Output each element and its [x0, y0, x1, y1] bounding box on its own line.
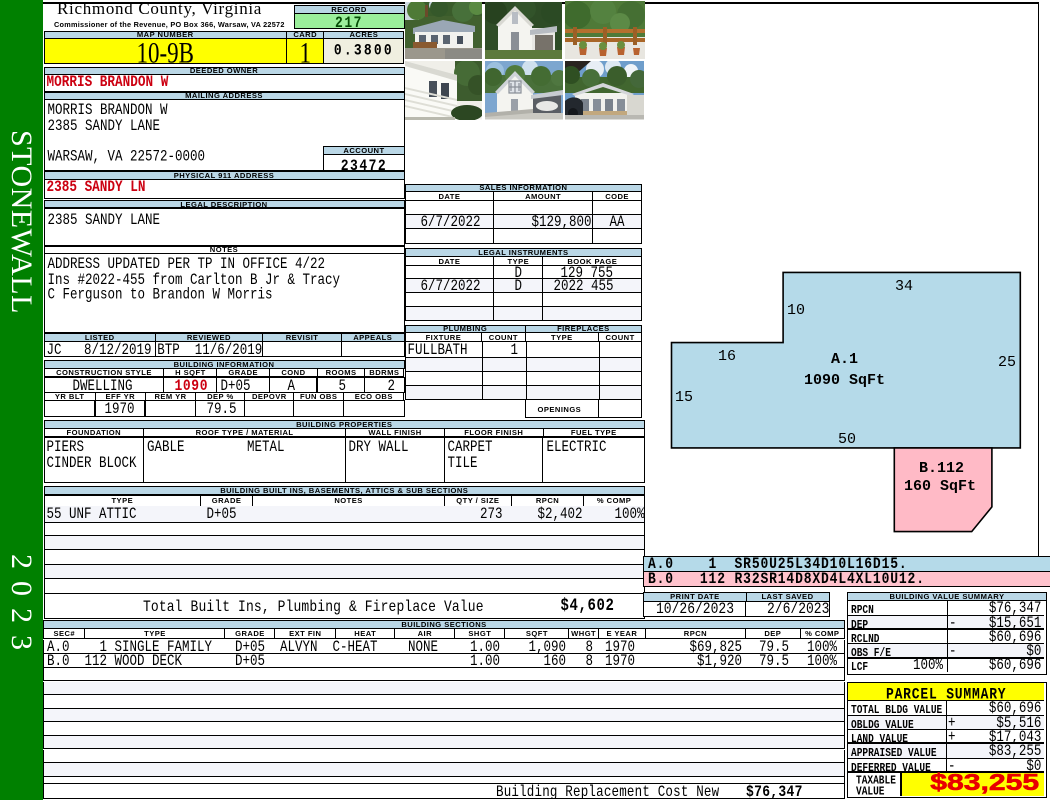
svg-text:34: 34 — [895, 278, 913, 295]
svg-text:15: 15 — [675, 389, 693, 406]
svg-text:16: 16 — [718, 348, 736, 365]
svg-text:160 SqFt: 160 SqFt — [904, 478, 976, 495]
svg-text:25: 25 — [998, 354, 1016, 371]
svg-text:50: 50 — [838, 431, 856, 448]
svg-text:A.1: A.1 — [831, 351, 858, 368]
svg-text:B.112: B.112 — [919, 460, 964, 477]
svg-text:10: 10 — [787, 302, 805, 319]
svg-text:1090 SqFt: 1090 SqFt — [804, 372, 885, 389]
